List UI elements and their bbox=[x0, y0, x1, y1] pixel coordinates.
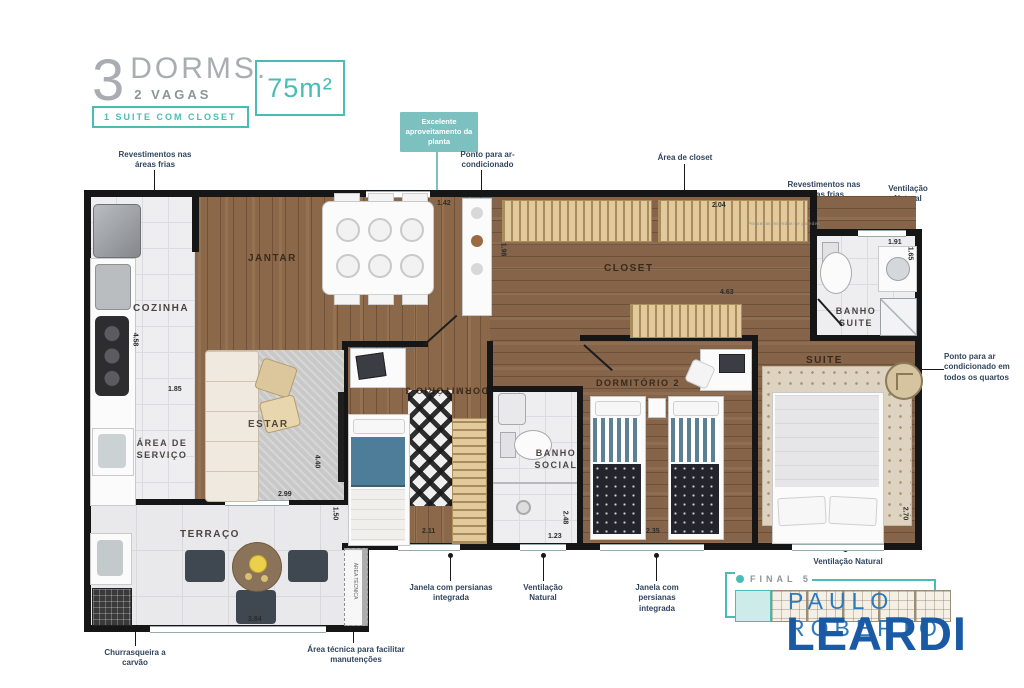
annotation-ventilacao-1: Ventilação Natural bbox=[514, 583, 572, 604]
logo-leardi: LEARDI bbox=[786, 612, 967, 657]
room-label-estar: ESTAR bbox=[248, 418, 289, 431]
annotation-janela-2: Janela com persianas integrada bbox=[624, 583, 690, 614]
kitchen-sink bbox=[95, 264, 131, 310]
room-label-cozinha: COZINHA bbox=[133, 302, 189, 315]
dorm2-nightstand bbox=[648, 398, 666, 418]
leader-dot bbox=[541, 553, 546, 558]
terrace-chair bbox=[288, 550, 328, 582]
dimension: 1.85 bbox=[168, 386, 182, 393]
keyplan-dot bbox=[736, 575, 744, 583]
dimension: 1.91 bbox=[888, 239, 902, 246]
plate bbox=[336, 254, 360, 278]
plate bbox=[368, 254, 392, 278]
annotation-area-tecnica: Área técnica para facilitar manutenções bbox=[302, 645, 410, 666]
keyplan-unit-highlight bbox=[735, 590, 771, 622]
dining-table bbox=[322, 201, 434, 295]
dining-chair bbox=[334, 294, 360, 305]
annotation-churrasqueira: Churrasqueira a carvão bbox=[95, 648, 175, 669]
dimension: 2.99 bbox=[278, 491, 292, 498]
tv-panel bbox=[338, 392, 344, 482]
banho-suite-toilet bbox=[820, 252, 852, 294]
callout-box: Excelente aproveitamento da planta bbox=[400, 112, 478, 152]
dimension: 1.98 bbox=[499, 243, 506, 257]
vagas-label: 2 VAGAS bbox=[134, 87, 211, 102]
plate bbox=[368, 218, 392, 242]
room-label-area-servico: ÁREA DE SERVIÇO bbox=[136, 438, 188, 461]
room-label-dorm3: DORMITÓRIO 3 bbox=[404, 384, 488, 396]
leader-line bbox=[543, 557, 544, 581]
dimension: 1.42 bbox=[437, 200, 451, 207]
annotation-area-closet: Área de closet bbox=[645, 153, 725, 163]
dimension: 2.35 bbox=[646, 528, 660, 535]
dining-chair bbox=[368, 294, 394, 305]
dorm2-bed-1 bbox=[590, 396, 646, 540]
area-badge: 75m² bbox=[255, 60, 345, 116]
dorm3-rug bbox=[408, 390, 452, 506]
floorplan-flyer: 3 DORMS. 2 VAGAS 1 SUITE COM CLOSET 75m²… bbox=[0, 0, 1024, 688]
terrace-chair bbox=[185, 550, 225, 582]
leader-dot bbox=[654, 553, 659, 558]
annotation-janela-1: Janela com persianas integrada bbox=[408, 583, 494, 604]
laundry-tub bbox=[92, 428, 134, 476]
wall-banho-social-top bbox=[493, 386, 583, 392]
plate bbox=[336, 218, 360, 242]
window-terrace bbox=[150, 626, 326, 633]
dimension: 3.84 bbox=[248, 616, 262, 623]
header-title: 3 DORMS. 2 VAGAS bbox=[92, 52, 268, 110]
dimension: 2.04 bbox=[712, 202, 726, 209]
keyplan-line bbox=[812, 579, 936, 581]
wall-dorm3-right bbox=[487, 341, 493, 550]
leader-dot bbox=[448, 553, 453, 558]
room-label-closet: CLOSET bbox=[604, 262, 654, 275]
window-suite bbox=[792, 544, 884, 551]
banho-suite-shower bbox=[880, 298, 917, 336]
annotation-ponto-ar-top: Ponto para ar-condicionado bbox=[445, 150, 530, 171]
room-label-banho-social: BANHO SOCIAL bbox=[530, 448, 582, 471]
dorm3-wardrobe bbox=[452, 418, 487, 544]
banho-social-sink bbox=[498, 393, 526, 425]
plate bbox=[400, 254, 424, 278]
dimension: 2.11 bbox=[422, 528, 435, 535]
dining-chair bbox=[402, 294, 428, 305]
shower-glass bbox=[493, 482, 577, 484]
window-dorm2 bbox=[600, 544, 704, 551]
room-label-banho-suite: BANHO SUITE bbox=[834, 306, 878, 329]
dorm2-bed-2 bbox=[668, 396, 724, 540]
area-tecnica-strip-label: ÁREA TÉCNICA bbox=[352, 558, 358, 604]
leader-line bbox=[656, 557, 657, 581]
wall-banho-suite-left bbox=[810, 190, 817, 341]
suite-bed bbox=[772, 392, 884, 544]
dorm2-wardrobe bbox=[630, 304, 742, 338]
dorm3-bed bbox=[348, 414, 410, 546]
room-label-suite: SUITE bbox=[806, 354, 843, 367]
fridge bbox=[93, 204, 141, 258]
charcoal-grill bbox=[92, 588, 132, 626]
wall-kitchen-stub bbox=[192, 190, 199, 252]
terrace-table bbox=[232, 542, 282, 592]
dimension: 2.48 bbox=[561, 511, 568, 525]
dorms-count: 3 bbox=[92, 52, 124, 110]
leader-line bbox=[450, 557, 451, 581]
dimension: 1.65 bbox=[906, 247, 913, 261]
dorms-label: DORMS. bbox=[130, 52, 268, 85]
fine-print: Pequenas emendas de paredes bbox=[748, 221, 836, 226]
dimension: 4.40 bbox=[313, 455, 320, 469]
terrace-sink bbox=[90, 533, 132, 585]
dimension: 4.63 bbox=[720, 289, 734, 296]
annotation-revestimentos-left: Revestimentos nas áreas frias bbox=[110, 150, 200, 171]
dorm3-desk bbox=[350, 348, 406, 388]
room-label-jantar: JANTAR bbox=[248, 252, 297, 265]
cooktop bbox=[95, 316, 129, 396]
window-banho-social bbox=[520, 544, 566, 551]
room-label-terraco: TERRAÇO bbox=[180, 528, 240, 541]
wall-dorm3-top bbox=[342, 341, 428, 347]
keyplan-bracket bbox=[725, 572, 735, 618]
keyplan-label: FINAL 5 bbox=[750, 574, 812, 584]
annotation-ponto-ar-quartos: Ponto para ar condicionado em todos os q… bbox=[944, 352, 1014, 383]
dimension: 1.50 bbox=[331, 507, 338, 521]
suite-badge: 1 SUITE COM CLOSET bbox=[92, 106, 249, 128]
annotation-ventilacao-suite: Ventilação Natural bbox=[798, 557, 898, 567]
wall-dorm2-right bbox=[752, 335, 758, 547]
dimension: 1.23 bbox=[548, 533, 562, 540]
plate bbox=[400, 218, 424, 242]
dimension: 2.70 bbox=[901, 507, 908, 521]
dimension: 4.58 bbox=[131, 333, 138, 347]
shower-drain bbox=[516, 500, 531, 515]
room-label-dorm2: DORMITÓRIO 2 bbox=[596, 378, 680, 390]
sideboard bbox=[462, 198, 492, 316]
ac-point-fan bbox=[885, 362, 923, 400]
closet-wardrobe-left bbox=[502, 200, 652, 242]
window-banho-suite bbox=[858, 230, 906, 237]
